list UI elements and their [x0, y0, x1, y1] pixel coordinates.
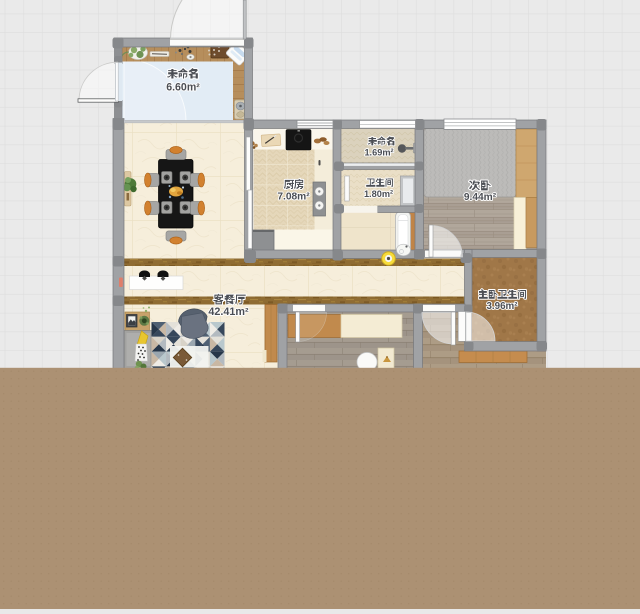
svg-text:1.69m²: 1.69m²: [364, 148, 393, 158]
svg-text:3.96m²: 3.96m²: [486, 301, 518, 312]
svg-text:9.44m²: 9.44m²: [464, 192, 497, 203]
svg-text:6.60m²: 6.60m²: [166, 82, 200, 94]
svg-text:42.41m²: 42.41m²: [208, 306, 249, 318]
svg-text:7.08m²: 7.08m²: [277, 192, 310, 203]
svg-text:1.80m²: 1.80m²: [364, 189, 393, 199]
